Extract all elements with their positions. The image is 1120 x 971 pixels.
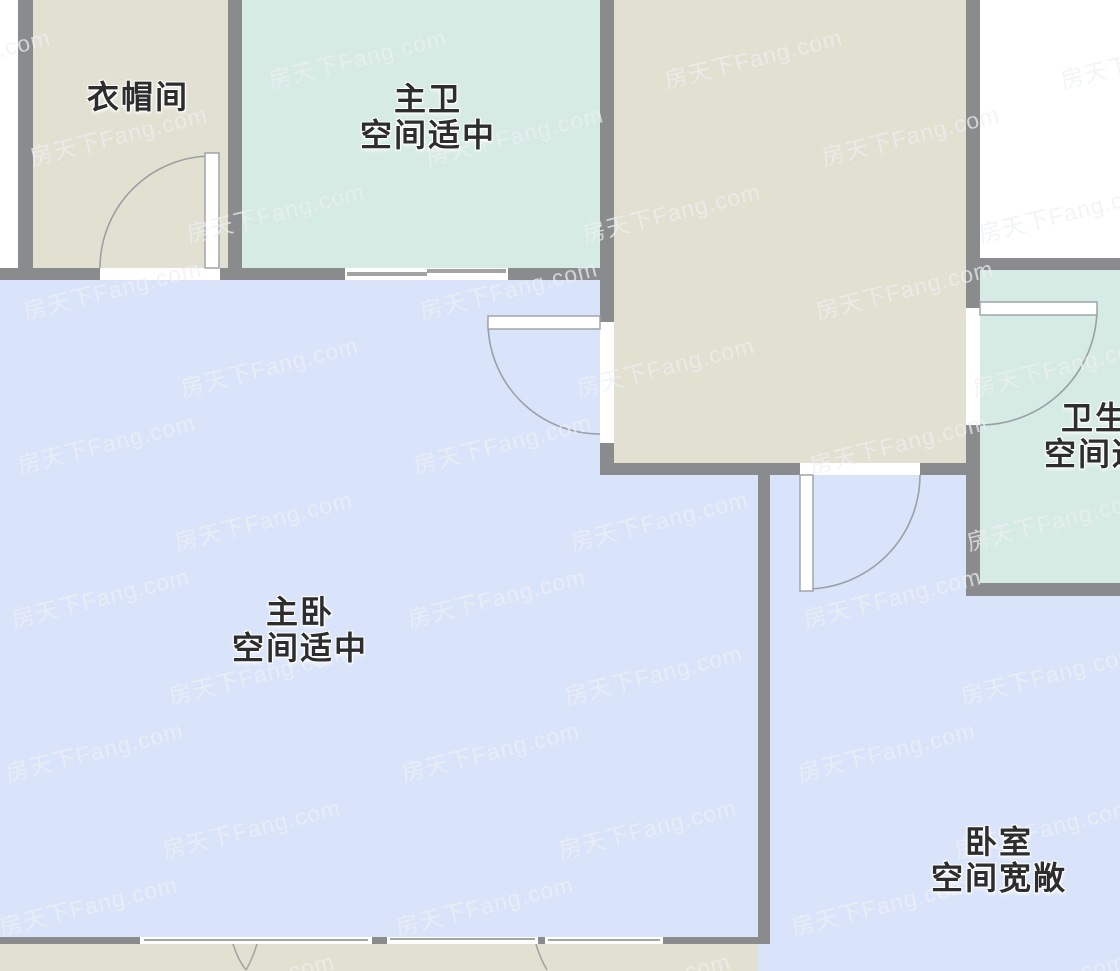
- room-name: 主卫: [360, 81, 496, 117]
- room-label-bedroom: 卧室 空间宽敞: [931, 824, 1067, 896]
- wall-hallway-left-upper: [600, 0, 614, 322]
- bedroom-door-opening: [800, 463, 920, 475]
- room-name: 主卧: [232, 594, 368, 630]
- room-note: 空间宽敞: [931, 860, 1067, 896]
- watermark-text: 房天下Fang.com: [975, 172, 1120, 249]
- balcony-window-2-sash: [390, 938, 535, 940]
- room-cloakroom-floor: [33, 0, 228, 268]
- master-bedroom-door-opening: [600, 322, 614, 443]
- room-label-master-bedroom: 主卧 空间适中: [232, 594, 368, 666]
- hallway-floor: [614, 0, 966, 463]
- balcony-window-1-sash: [144, 939, 368, 941]
- room-label-cloakroom: 衣帽间: [87, 79, 189, 115]
- master-bathroom-window-sash-left: [347, 272, 427, 276]
- wall-bathroom-top: [980, 258, 1120, 270]
- balcony-window-3-sash: [548, 939, 660, 941]
- room-note: 空间适中: [360, 117, 496, 153]
- wall-top-band: [0, 268, 614, 280]
- room-name: 卫生间: [1044, 400, 1120, 436]
- bathroom-door-opening: [966, 308, 980, 425]
- wall-cloakroom-masterbath-divider: [228, 0, 242, 268]
- room-name: 卧室: [931, 824, 1067, 860]
- wall-bathroom-bottom: [966, 583, 1120, 596]
- watermark-text: 房天下Fang.com: [1057, 18, 1120, 95]
- wall-hallway-left-lower: [600, 443, 614, 465]
- room-label-bathroom: 卫生间 空间适中: [1044, 400, 1120, 472]
- master-bathroom-window-sash-right: [427, 269, 506, 273]
- room-note: 空间适中: [1044, 436, 1120, 472]
- floorplan: 房天下Fang.com房天下Fang.com房天下Fang.com房天下Fang…: [0, 0, 1120, 971]
- wall-hallway-bottom: [600, 463, 980, 475]
- wall-outer-left: [18, 0, 33, 280]
- room-label-master-bathroom: 主卫 空间适中: [360, 81, 496, 153]
- cloakroom-door-opening: [100, 268, 220, 280]
- wall-bathroom-left: [966, 0, 980, 583]
- wall-bedroom-divider: [758, 463, 770, 944]
- room-note: 空间适中: [232, 630, 368, 666]
- room-name: 衣帽间: [87, 79, 189, 115]
- balcony-floor: [0, 944, 758, 971]
